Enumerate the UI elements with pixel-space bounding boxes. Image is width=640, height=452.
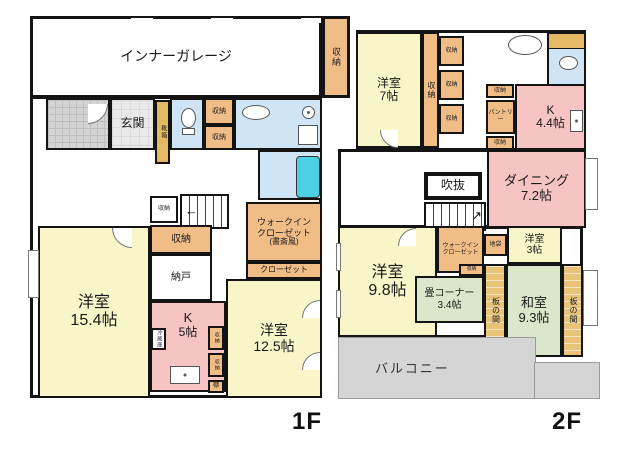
window bbox=[336, 290, 341, 318]
stove-icon bbox=[170, 366, 200, 384]
room-label: 洋室 bbox=[371, 264, 403, 282]
room-label: K bbox=[184, 311, 193, 326]
room-inner-garage: インナーガレージ bbox=[30, 16, 322, 98]
room-label: 棚 bbox=[213, 383, 219, 390]
room-size: 7帖 bbox=[380, 90, 399, 103]
room-storage-kitchen-2: 収納 bbox=[208, 353, 224, 377]
room-label: 収納 bbox=[331, 47, 341, 67]
toilet-shelf bbox=[549, 34, 584, 49]
room-label: 洋室 bbox=[377, 77, 401, 90]
room-bath-1f bbox=[258, 150, 322, 200]
balcony: バルコニー bbox=[338, 337, 536, 399]
room-genkan: 玄関 bbox=[110, 98, 155, 150]
room-label: 洋室 bbox=[260, 323, 288, 339]
garage-wall-gap bbox=[301, 18, 321, 23]
room-storage-pantry-bottom: 収納 bbox=[486, 136, 514, 150]
room-size: 3.4帖 bbox=[438, 300, 462, 311]
room-label: 収納 bbox=[158, 206, 170, 213]
window bbox=[336, 243, 341, 271]
room-label: インナーガレージ bbox=[120, 49, 232, 65]
room-label: 地袋 bbox=[489, 242, 501, 249]
shelf: 棚 bbox=[208, 380, 224, 393]
room-label: 収納 bbox=[426, 81, 435, 99]
room-void-fukinuke: 吹抜 bbox=[424, 172, 482, 200]
room-label: 収納 bbox=[445, 116, 457, 123]
room-label: 収納 bbox=[494, 88, 506, 95]
room-size: 5帖 bbox=[179, 326, 198, 339]
room-label: パントリー bbox=[488, 110, 513, 123]
room-label: (書斎風) bbox=[269, 238, 298, 247]
room-label: 収納 bbox=[445, 82, 457, 89]
stairs-1f: ← bbox=[180, 194, 229, 229]
room-nando: 納戸 bbox=[150, 254, 212, 301]
room-storage-center: 収納 bbox=[150, 225, 212, 254]
room-size: 4.4帖 bbox=[536, 117, 565, 130]
bathtub-icon bbox=[296, 156, 320, 198]
floor-plan: インナーガレージ 収納 玄関 靴箱 収納 収納 収納 ← bbox=[0, 0, 640, 452]
room-label: 板の間 bbox=[491, 297, 500, 324]
room-size: 9.3帖 bbox=[518, 311, 549, 326]
room-label: 収納 bbox=[494, 140, 506, 147]
refrigerator: 冷蔵庫 bbox=[151, 328, 166, 350]
room-label: ウォークイン bbox=[442, 243, 478, 250]
floor-label-2f: 2F bbox=[552, 408, 582, 436]
vanity-sink-icon bbox=[508, 35, 542, 55]
room-label: バルコニー bbox=[375, 358, 450, 377]
room-label: 吹抜 bbox=[441, 179, 465, 192]
room-jibukuro: 地袋 bbox=[484, 234, 507, 256]
room-label: ダイニング bbox=[504, 174, 569, 189]
room-label: 洋室 bbox=[525, 234, 545, 245]
room-toilet-2f bbox=[547, 32, 586, 86]
stairs-direction-arrow: ← bbox=[185, 203, 198, 218]
room-label: ウォークイン bbox=[257, 217, 311, 227]
room-label: 収納 bbox=[212, 108, 226, 116]
balcony-extension bbox=[534, 362, 600, 399]
garage-wall-gap bbox=[211, 18, 233, 23]
room-bedroom-3: 洋室 3帖 bbox=[507, 226, 562, 264]
stove-icon bbox=[570, 110, 583, 132]
room-label: 和室 bbox=[521, 296, 547, 311]
room-bedroom-12-5: 洋室 12.5帖 bbox=[226, 279, 322, 398]
washing-machine-icon bbox=[298, 125, 318, 145]
room-storage-pantry-top: 収納 bbox=[486, 84, 514, 98]
room-label: 板の間 bbox=[568, 297, 577, 324]
room-storage-stairside: 収納 bbox=[150, 196, 178, 223]
room-kitchen-2f: K 4.4帖 bbox=[515, 84, 586, 150]
floor-label-1f: 1F bbox=[292, 408, 322, 436]
room-toilet-1f bbox=[170, 98, 204, 150]
room-storage-hall2f-3: 収納 bbox=[439, 104, 464, 134]
shoe-cabinet: 靴箱 bbox=[155, 100, 170, 164]
stairs-direction-arrow: ↗ bbox=[471, 208, 482, 224]
room-label: 冷蔵庫 bbox=[156, 330, 162, 348]
room-size: 15.4帖 bbox=[70, 312, 117, 330]
room-tatami-corner: 畳コーナー 3.4帖 bbox=[415, 276, 484, 323]
bay-window-living bbox=[28, 250, 39, 298]
room-storage-strip-2f: 収納 bbox=[422, 32, 439, 148]
room-label: 畳コーナー bbox=[425, 288, 475, 299]
room-size: 12.5帖 bbox=[253, 339, 294, 355]
room-label: 納戸 bbox=[171, 272, 191, 283]
room-label: クローゼット bbox=[260, 266, 308, 275]
bay-window-washitsu bbox=[583, 270, 598, 326]
room-storage-hall-1: 収納 bbox=[204, 98, 234, 125]
toilet-tank-icon bbox=[182, 128, 195, 135]
toilet-icon bbox=[181, 108, 196, 128]
room-walkin-closet-1f: ウォークイン クローゼット (書斎風) bbox=[246, 202, 322, 262]
room-label: K bbox=[546, 104, 554, 117]
room-label: 収納 bbox=[445, 48, 457, 55]
room-closet-1f: クローゼット bbox=[246, 262, 322, 279]
garage-wall-gap bbox=[131, 18, 153, 23]
room-label: 収納 bbox=[212, 134, 226, 142]
room-storage-hall2f-1: 収納 bbox=[439, 36, 464, 66]
room-label: 収納 bbox=[171, 234, 191, 245]
room-pantry: パントリー bbox=[486, 100, 515, 134]
room-storage-kitchen-1: 収納 bbox=[208, 326, 224, 350]
room-label: 玄関 bbox=[120, 117, 144, 130]
room-size: 7.2帖 bbox=[521, 189, 552, 204]
room-label: 収納 bbox=[466, 267, 476, 273]
bay-window-dining bbox=[585, 158, 598, 210]
toilet-icon bbox=[559, 56, 578, 70]
room-dining: ダイニング 7.2帖 bbox=[487, 150, 586, 228]
room-storage-northeast: 収納 bbox=[322, 16, 350, 98]
room-label: 洋室 bbox=[78, 294, 110, 312]
sink-icon bbox=[302, 106, 315, 119]
room-label: クローゼット bbox=[442, 250, 478, 257]
room-itanoma-right: 板の間 bbox=[562, 264, 583, 357]
room-washroom-1f bbox=[234, 98, 322, 150]
room-label: 収納 bbox=[213, 359, 219, 371]
room-size: 9.8帖 bbox=[368, 282, 406, 300]
vanity-sink-icon bbox=[242, 105, 270, 120]
room-size: 3帖 bbox=[527, 245, 543, 256]
room-living-15-4: 洋室 15.4帖 bbox=[38, 226, 150, 398]
room-label: 収納 bbox=[213, 332, 219, 344]
room-storage-hall2f-2: 収納 bbox=[439, 70, 464, 100]
room-storage-wic-2f: 収納 bbox=[459, 264, 484, 276]
room-storage-hall-2: 収納 bbox=[204, 125, 234, 150]
room-label: 靴箱 bbox=[159, 125, 166, 139]
